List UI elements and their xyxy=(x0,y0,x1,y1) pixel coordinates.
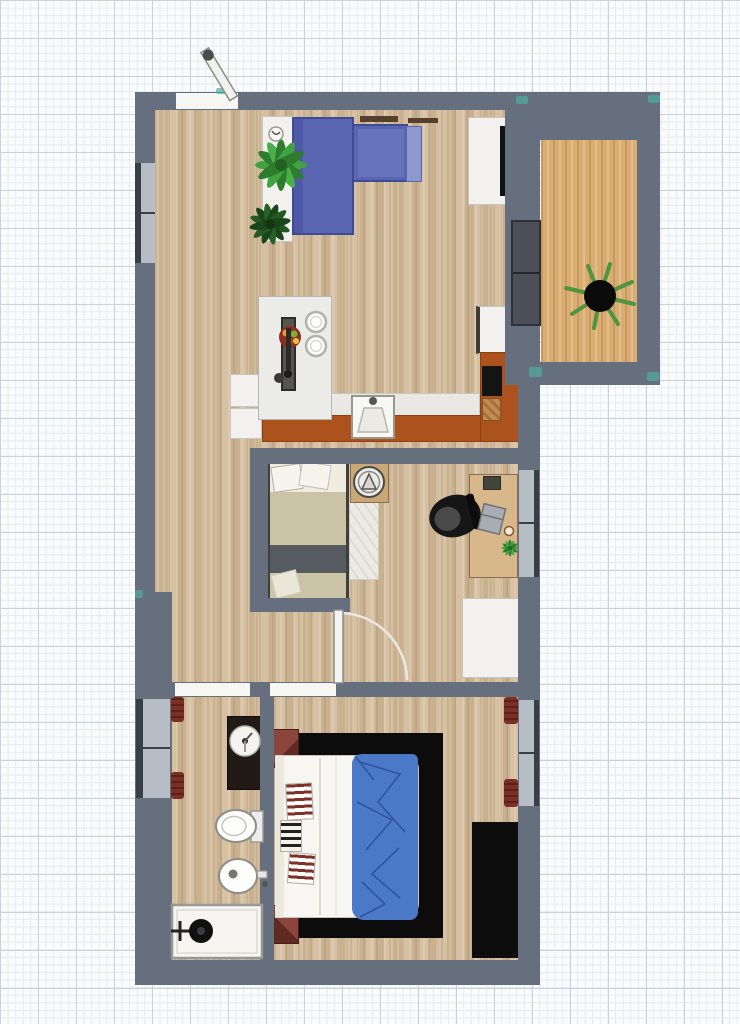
kitchen-sink[interactable] xyxy=(352,396,394,438)
office-chair[interactable] xyxy=(425,489,486,542)
blanket-folds xyxy=(355,756,405,917)
mug xyxy=(505,527,514,536)
toilet[interactable] xyxy=(216,810,263,842)
vanity-sink xyxy=(230,726,260,756)
door-middle-bedroom[interactable] xyxy=(334,610,407,683)
entrance-door[interactable] xyxy=(200,47,238,101)
plant-small[interactable] xyxy=(243,197,296,250)
bidet[interactable] xyxy=(219,859,268,893)
shower[interactable] xyxy=(171,905,262,958)
desk-plant xyxy=(502,540,519,557)
plate-2 xyxy=(306,336,326,356)
laptop[interactable] xyxy=(478,504,506,535)
plate-1 xyxy=(306,312,326,332)
pot-white xyxy=(269,127,283,141)
detail-overlay xyxy=(0,0,740,1024)
balcony-plant[interactable] xyxy=(566,264,634,328)
fan-table-fan xyxy=(354,467,384,497)
duvet-fold-line xyxy=(320,758,336,915)
plant-large[interactable] xyxy=(255,139,307,191)
floor-plan-canvas xyxy=(0,0,740,1024)
cup xyxy=(274,373,284,383)
